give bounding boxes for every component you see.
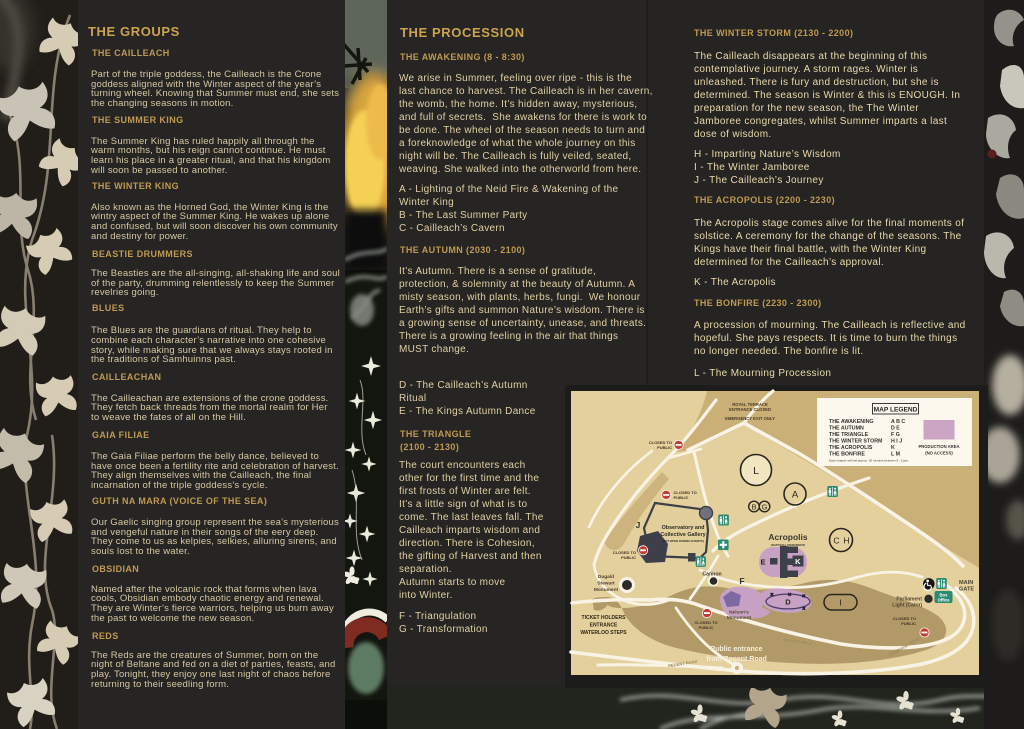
svg-text:Monument: Monument	[727, 615, 752, 621]
svg-text:Each chapter will last approx.: Each chapter will last approx. 30 minute…	[829, 459, 909, 463]
svg-text:THE WINTER STORM: THE WINTER STORM	[829, 439, 883, 445]
svg-text:H: H	[843, 536, 849, 546]
svg-text:Public entrance: Public entrance	[710, 646, 762, 653]
svg-text:Observatory and: Observatory and	[662, 525, 705, 531]
svg-text:GATE: GATE	[959, 587, 974, 593]
svg-text:Dugald: Dugald	[598, 574, 614, 580]
svg-text:K: K	[795, 557, 801, 566]
svg-text:THE AWAKENING: THE AWAKENING	[829, 419, 874, 425]
svg-text:(NO ACCESS): (NO ACCESS)	[925, 451, 953, 456]
svg-text:PUBLIC: PUBLIC	[674, 495, 689, 500]
svg-text:TICKET HOLDERS: TICKET HOLDERS	[582, 615, 627, 621]
svg-text:C: C	[833, 536, 839, 546]
svg-text:D: D	[785, 598, 791, 607]
svg-text:K: K	[891, 445, 895, 451]
svg-text:(NOT OPEN DURING EVENTS): (NOT OPEN DURING EVENTS)	[662, 539, 704, 543]
svg-text:EMERGENCY EXIT ONLY: EMERGENCY EXIT ONLY	[725, 416, 775, 421]
svg-text:D E: D E	[891, 426, 900, 432]
svg-text:PRODUCTION AREA: PRODUCTION AREA	[918, 444, 959, 449]
svg-text:Collective Gallery: Collective Gallery	[660, 532, 705, 538]
svg-text:MAIN: MAIN	[959, 580, 973, 586]
svg-text:THE AUTUMN: THE AUTUMN	[829, 426, 864, 432]
svg-text:J: J	[636, 520, 641, 530]
svg-text:Light (Cairn): Light (Cairn)	[892, 602, 922, 608]
svg-text:THE TRIANGLE: THE TRIANGLE	[829, 432, 869, 438]
svg-text:ENTRANCE: ENTRANCE	[590, 623, 618, 629]
svg-text:ENTRANCE CLOSED: ENTRANCE CLOSED	[729, 407, 771, 412]
svg-text:F G: F G	[891, 432, 900, 438]
svg-text:A: A	[792, 490, 799, 501]
svg-text:Acropolis: Acropolis	[768, 532, 807, 542]
svg-text:MAP LEGEND: MAP LEGEND	[874, 407, 918, 414]
svg-text:Stewart: Stewart	[597, 581, 615, 587]
svg-text:PUBLIC: PUBLIC	[657, 445, 672, 450]
svg-text:THE BONFIRE: THE BONFIRE	[829, 452, 865, 458]
svg-text:PUBLIC: PUBLIC	[901, 621, 916, 626]
svg-text:Nelson’s: Nelson’s	[729, 610, 749, 616]
svg-text:H I J: H I J	[891, 439, 902, 445]
svg-text:Cannon: Cannon	[702, 572, 721, 578]
svg-text:A B C: A B C	[891, 419, 905, 425]
svg-text:(NATIONAL MONUMENT): (NATIONAL MONUMENT)	[771, 543, 805, 547]
svg-text:I: I	[839, 598, 841, 608]
svg-text:Monument: Monument	[594, 587, 619, 593]
svg-text:E: E	[760, 558, 765, 567]
svg-text:Office: Office	[938, 597, 951, 602]
svg-text:L: L	[753, 465, 759, 477]
svg-text:from Regent Road: from Regent Road	[706, 656, 767, 663]
svg-text:WATERLOO STEPS: WATERLOO STEPS	[580, 630, 627, 636]
svg-text:F: F	[739, 576, 744, 586]
svg-text:PUBLIC: PUBLIC	[621, 555, 636, 560]
svg-text:L M: L M	[891, 452, 901, 458]
svg-text:PUBLIC: PUBLIC	[699, 625, 714, 630]
svg-text:THE ACROPOLIS: THE ACROPOLIS	[829, 445, 873, 451]
svg-text:B: B	[751, 503, 756, 512]
svg-text:G: G	[762, 503, 768, 512]
